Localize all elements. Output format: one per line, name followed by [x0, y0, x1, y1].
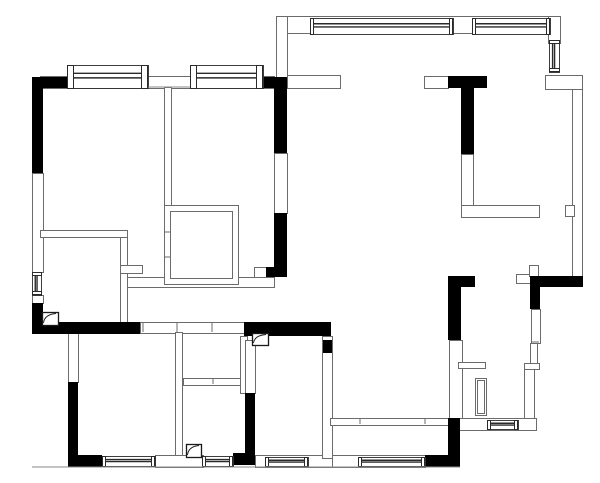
structural-wall — [274, 87, 287, 153]
partition-wall — [525, 364, 540, 370]
structural-wall — [68, 382, 78, 457]
partition-wall — [165, 88, 172, 206]
partition-wall — [275, 154, 288, 214]
window-post — [33, 292, 42, 295]
partition-wall — [566, 206, 575, 217]
structural-wall — [530, 287, 540, 309]
partition-wall — [546, 76, 583, 90]
window-post — [473, 19, 476, 35]
partition-wall — [531, 344, 538, 365]
partition-wall — [530, 266, 539, 277]
partition-wall — [121, 266, 143, 274]
window-post — [422, 458, 425, 467]
structural-wall — [32, 77, 43, 173]
window-post — [68, 66, 74, 89]
partition-wall — [141, 323, 245, 334]
partition-wall — [450, 341, 463, 419]
window-post — [359, 458, 362, 467]
window-post — [33, 273, 42, 276]
window-frame — [68, 66, 149, 89]
window-post — [142, 66, 148, 89]
structural-wall — [323, 340, 332, 353]
partition-wall — [69, 333, 79, 383]
window-post — [547, 19, 550, 35]
partition-wall — [532, 310, 541, 344]
structural-wall — [68, 455, 102, 467]
structural-wall — [233, 453, 255, 465]
partition-wall — [255, 268, 268, 278]
structural-wall — [448, 276, 475, 287]
window-post — [257, 66, 263, 89]
structural-wall — [461, 88, 474, 154]
structural-wall — [274, 213, 287, 268]
structural-wall — [245, 393, 255, 463]
partition-wall — [41, 231, 128, 238]
floor-plan-svg — [0, 0, 600, 483]
structural-wall — [263, 77, 287, 88]
partition-wall — [184, 379, 248, 386]
window-post — [203, 457, 206, 467]
partition-wall — [176, 333, 183, 458]
window-post — [450, 19, 453, 35]
window-post — [311, 19, 314, 35]
partition-wall — [462, 206, 540, 218]
partition-wall — [462, 155, 474, 208]
partition-wall — [33, 296, 44, 304]
window-post — [488, 421, 491, 430]
structural-wall — [32, 77, 70, 88]
partition-wall — [33, 174, 44, 273]
window-post — [550, 41, 560, 44]
structural-wall — [448, 287, 461, 340]
window-post — [515, 421, 518, 430]
window-post — [305, 458, 308, 467]
window-post — [152, 457, 155, 467]
window-frame — [191, 66, 264, 89]
partition-wall — [121, 238, 128, 324]
partition-wall — [323, 337, 333, 459]
window-post — [550, 69, 560, 72]
window-post — [230, 457, 233, 467]
partition-wall — [459, 363, 486, 369]
structural-wall — [448, 76, 487, 88]
partition-wall — [573, 90, 583, 278]
structural-wall — [266, 267, 287, 277]
partition-wall — [525, 370, 535, 419]
structural-wall — [425, 455, 460, 467]
partition-wall — [288, 76, 341, 89]
window-post — [103, 457, 106, 467]
window-post — [266, 458, 269, 467]
floor-plan — [0, 0, 600, 483]
partition-wall — [478, 381, 485, 414]
partition-wall — [246, 341, 256, 394]
partition-wall — [331, 419, 451, 426]
partition-wall — [425, 77, 449, 89]
structural-wall — [530, 276, 583, 287]
window-post — [191, 66, 197, 89]
partition-wall — [171, 212, 233, 279]
